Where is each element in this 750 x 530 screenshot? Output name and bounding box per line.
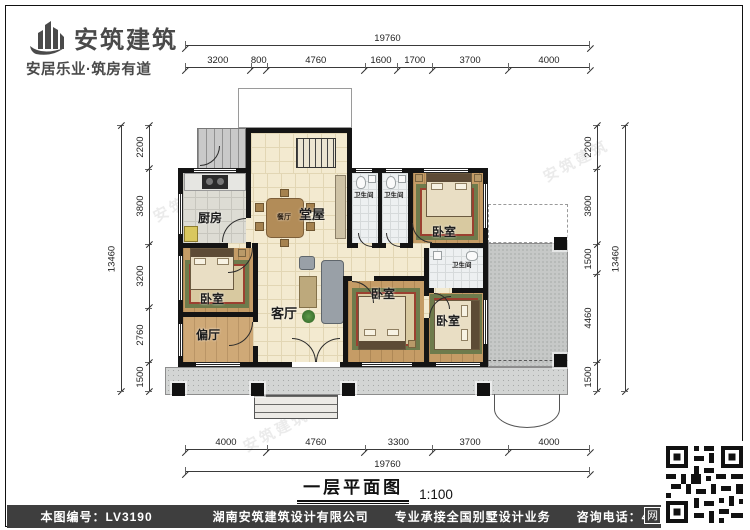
sofa — [321, 260, 344, 324]
dimension-top-segments: 320080047601600170037004000 — [185, 54, 590, 68]
dimension-segment: 1600 — [365, 54, 398, 68]
sink — [433, 251, 442, 260]
dimension-segment: 800 — [251, 54, 267, 68]
column — [342, 383, 355, 396]
dimension-segment: 2200 — [134, 125, 150, 169]
window — [424, 168, 468, 173]
dimension-left-segments: 22003800320027601500 — [134, 125, 150, 392]
wall — [452, 288, 488, 293]
front-porch — [165, 367, 568, 395]
drawing-number: 本图编号：LV3190 — [41, 508, 153, 525]
dimension-value: 13460 — [610, 245, 621, 271]
room-label-hall: 堂屋 — [299, 204, 325, 223]
footer-bar: 本图编号：LV3190 湖南安筑建筑设计有限公司 专业承接全国别墅设计业务 咨询… — [7, 505, 744, 528]
staircase — [296, 138, 336, 168]
dimension-segment: 13460 — [610, 125, 626, 392]
drawing-scale: 1:100 — [419, 487, 453, 502]
window — [362, 362, 412, 367]
dimension-segment: 3800 — [582, 169, 598, 244]
qr-code — [661, 441, 748, 528]
room-label-bedroom-tr: 卧室 — [432, 223, 456, 240]
dimension-segment: 2760 — [134, 308, 150, 363]
net-badge: 网 — [644, 507, 661, 524]
room-label-bedroom-br: 卧室 — [436, 312, 460, 329]
bedroom-mid-bed — [358, 296, 406, 350]
dimension-value: 1600 — [370, 55, 391, 66]
wall — [424, 288, 434, 293]
dimension-top-total: 19760 — [185, 32, 590, 46]
dimension-bottom-total: 19760 — [185, 458, 590, 472]
wall — [424, 318, 429, 367]
dimension-bottom-segments: 40004760330037004000 — [185, 436, 590, 450]
wall — [246, 128, 352, 133]
dimension-segment: 4460 — [582, 274, 598, 362]
wall — [372, 243, 386, 248]
dimension-value: 3700 — [460, 55, 481, 66]
dimension-segment: 3700 — [432, 54, 508, 68]
dimension-value: 13460 — [106, 245, 117, 271]
wall — [374, 276, 428, 281]
dimension-value: 4000 — [215, 437, 236, 448]
bedroom-tr-bed — [426, 173, 472, 217]
footer-company: 湖南安筑建筑设计有限公司 — [213, 508, 369, 525]
hall-cabinet — [335, 175, 346, 239]
dimension-value: 3300 — [388, 437, 409, 448]
company-logo-icon — [26, 13, 72, 59]
dimension-segment: 3700 — [432, 436, 508, 450]
nightstand — [474, 174, 482, 182]
dining-chair — [255, 222, 264, 231]
column — [477, 383, 490, 396]
dimension-value: 2200 — [582, 136, 593, 157]
sink — [368, 175, 376, 183]
room-label-bath2: 卫生间 — [384, 189, 404, 199]
room-label-bedroom-left: 卧室 — [200, 290, 224, 307]
wall — [178, 312, 258, 317]
nightstand — [408, 340, 416, 348]
window — [178, 194, 183, 234]
dimension-segment: 1700 — [397, 54, 432, 68]
company-tagline: 安居乐业·筑房有道 — [26, 58, 151, 79]
dimension-right-segments: 22003800150044601500 — [582, 125, 598, 392]
dimension-value: 19760 — [374, 33, 400, 44]
window — [194, 168, 236, 173]
dimension-segment: 3800 — [134, 169, 150, 244]
dimension-value: 4000 — [538, 55, 559, 66]
dimension-segment: 1500 — [582, 244, 598, 274]
dimension-segment: 3200 — [134, 244, 150, 307]
dimension-segment: 3200 — [185, 54, 251, 68]
wall — [347, 128, 352, 248]
dimension-segment: 19760 — [185, 32, 590, 46]
wall — [343, 276, 348, 367]
dimension-segment: 4000 — [508, 54, 590, 68]
dimension-segment: 4760 — [267, 54, 365, 68]
dimension-value: 19760 — [374, 459, 400, 470]
room-label-bedroom-mid: 卧室 — [371, 285, 395, 302]
dining-chair — [306, 222, 315, 231]
dimension-value: 4760 — [305, 437, 326, 448]
armchair — [299, 256, 315, 270]
toilet — [386, 176, 396, 189]
wall — [343, 276, 352, 281]
entry-steps — [254, 395, 338, 419]
toilet — [356, 176, 366, 189]
company-name: 安筑建筑 — [74, 20, 178, 55]
wall — [408, 168, 413, 248]
column — [172, 383, 185, 396]
window — [178, 256, 183, 300]
dimension-value: 1500 — [582, 248, 593, 269]
nightstand — [415, 174, 423, 182]
dining-chair — [280, 189, 289, 197]
window — [178, 324, 183, 356]
dimension-value: 3800 — [582, 196, 593, 217]
dimension-right-total: 13460 — [610, 125, 626, 392]
stove-burner — [206, 178, 213, 185]
dimension-segment: 1500 — [134, 362, 150, 392]
entry-roof-outline — [238, 88, 352, 128]
room-label-bath1: 卫生间 — [354, 189, 374, 199]
wall — [246, 128, 251, 218]
terrace-patio — [488, 243, 568, 367]
window — [356, 168, 372, 173]
drawing-title: 一层平面图 — [297, 473, 409, 502]
floor-plan-sheet: 安筑建筑 安居乐业·筑房有道 安筑建筑 安筑建筑 安筑建筑 安筑建筑 19760… — [0, 0, 750, 530]
dimension-left-total: 13460 — [106, 125, 122, 392]
room-label-living: 客厅 — [271, 303, 297, 322]
dimension-value: 800 — [251, 55, 267, 66]
dimension-value: 1500 — [582, 367, 593, 388]
coffee-table — [299, 276, 317, 308]
wall — [400, 243, 412, 248]
dimension-value: 4760 — [305, 55, 326, 66]
column — [554, 354, 567, 367]
kitchen-sink — [184, 226, 198, 242]
dimension-segment: 4000 — [185, 436, 267, 450]
window — [436, 362, 480, 367]
dimension-segment: 19760 — [185, 458, 590, 472]
room-label-side-hall: 偏厅 — [196, 326, 220, 343]
window — [386, 168, 402, 173]
dimension-value: 3200 — [134, 265, 145, 286]
dimension-value: 1500 — [134, 367, 145, 388]
wall — [253, 243, 258, 322]
window — [196, 362, 240, 367]
dimension-value: 3800 — [134, 196, 145, 217]
wall — [178, 243, 228, 248]
wall — [430, 243, 488, 248]
sink — [398, 175, 406, 183]
dimension-value: 2760 — [134, 324, 145, 345]
window — [483, 184, 488, 228]
wall — [253, 346, 258, 367]
dimension-segment: 1500 — [582, 362, 598, 392]
dimension-segment: 13460 — [106, 125, 122, 392]
dimension-segment: 4760 — [267, 436, 365, 450]
dimension-segment: 3300 — [365, 436, 433, 450]
dimension-value: 3200 — [207, 55, 228, 66]
dimension-segment: 4000 — [508, 436, 590, 450]
drawing-title-block: 一层平面图1:100 — [0, 473, 750, 502]
footer-service: 专业承接全国别墅设计业务 — [395, 508, 551, 525]
dimension-value: 3700 — [460, 437, 481, 448]
stove-burner — [217, 178, 224, 185]
dining-chair — [280, 239, 289, 247]
dimension-value: 2200 — [134, 136, 145, 157]
dimension-segment: 2200 — [582, 125, 598, 169]
room-label-dining: 餐厅 — [277, 212, 291, 222]
column — [554, 237, 567, 250]
window — [483, 300, 488, 344]
plant — [302, 310, 315, 323]
room-label-kitchen: 厨房 — [198, 209, 222, 226]
column — [251, 383, 264, 396]
wall — [378, 168, 382, 248]
dimension-value: 4000 — [538, 437, 559, 448]
dimension-value: 1700 — [404, 55, 425, 66]
dining-chair — [255, 203, 264, 212]
wall — [352, 243, 358, 248]
dimension-value: 4460 — [582, 307, 593, 328]
room-label-bath3: 卫生间 — [452, 259, 472, 269]
